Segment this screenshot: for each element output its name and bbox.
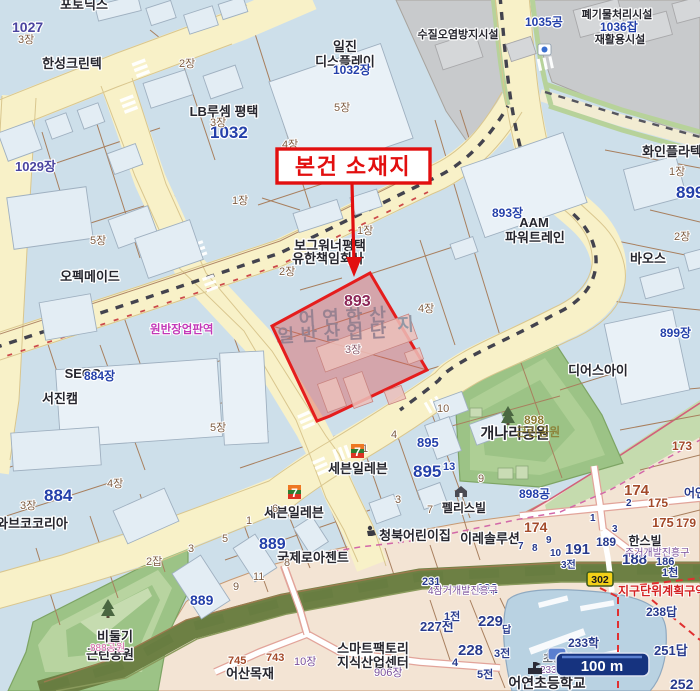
- svg-text:재활용시설: 재활용시설: [595, 32, 646, 46]
- svg-text:한스빌: 한스빌: [628, 533, 661, 548]
- svg-text:서진캠: 서진캠: [42, 391, 78, 406]
- svg-text:1: 1: [590, 513, 596, 524]
- svg-text:906장: 906장: [374, 666, 402, 679]
- svg-text:174: 174: [624, 482, 650, 499]
- svg-text:한성크린텍: 한성크린텍: [42, 56, 102, 71]
- svg-text:어언: 어언: [684, 485, 700, 500]
- svg-text:889: 889: [259, 536, 286, 553]
- svg-text:7: 7: [427, 504, 433, 516]
- svg-text:3장: 3장: [210, 116, 226, 129]
- svg-text:청북어린이집: 청북어린이집: [379, 528, 451, 543]
- svg-text:893: 893: [344, 293, 371, 310]
- svg-text:2: 2: [626, 498, 632, 509]
- svg-text:252: 252: [670, 676, 694, 691]
- svg-text:4잠거개발진흥구: 4잠거개발진흥구: [428, 584, 498, 597]
- svg-text:4: 4: [391, 429, 397, 441]
- svg-text:파워트레인: 파워트레인: [505, 230, 565, 245]
- svg-text:2장: 2장: [179, 57, 195, 70]
- svg-text:10: 10: [550, 548, 562, 559]
- svg-text:디어스아이: 디어스아이: [568, 363, 628, 378]
- svg-text:5전: 5전: [477, 667, 493, 681]
- svg-text:7: 7: [518, 541, 524, 552]
- svg-text:1천: 1천: [662, 565, 678, 579]
- svg-text:바오스: 바오스: [630, 251, 666, 266]
- svg-text:9: 9: [233, 581, 239, 593]
- svg-text:895: 895: [417, 435, 439, 450]
- svg-text:9: 9: [478, 473, 484, 485]
- svg-text:근린공원: 근린공원: [516, 424, 560, 439]
- svg-text:1029장: 1029장: [15, 159, 56, 174]
- svg-text:3장: 3장: [20, 499, 36, 512]
- svg-text:1전: 1전: [444, 609, 460, 623]
- svg-text:6: 6: [272, 503, 278, 515]
- svg-text:4장: 4장: [418, 302, 434, 315]
- svg-text:5: 5: [222, 533, 228, 545]
- svg-text:2잡: 2잡: [146, 555, 162, 568]
- svg-text:1035공: 1035공: [525, 15, 563, 29]
- svg-text:3: 3: [395, 494, 401, 506]
- svg-text:5장: 5장: [90, 234, 106, 247]
- svg-text:238답: 238답: [646, 604, 677, 619]
- svg-text:1032장: 1032장: [333, 63, 371, 77]
- svg-text:지구단위계획구역: 지구단위계획구역: [618, 583, 700, 598]
- svg-text:3: 3: [612, 524, 618, 535]
- svg-text:주거개발진흥구: 주거개발진흥구: [625, 546, 689, 559]
- svg-text:폐기물처리시설: 폐기물처리시설: [582, 7, 653, 21]
- svg-text:펠리스빌: 펠리스빌: [442, 500, 486, 515]
- svg-text:3장: 3장: [345, 343, 361, 356]
- svg-text:4: 4: [452, 657, 459, 669]
- svg-text:5장: 5장: [334, 101, 350, 114]
- svg-text:어연초등학교: 어연초등학교: [508, 675, 585, 691]
- svg-text:884: 884: [44, 486, 73, 505]
- svg-text:228: 228: [458, 642, 483, 659]
- svg-text:7: 7: [291, 486, 298, 500]
- svg-text:세븐일레븐: 세븐일레븐: [328, 461, 388, 476]
- svg-text:5장: 5장: [210, 421, 226, 434]
- svg-text:AAM: AAM: [519, 215, 549, 230]
- svg-text:175: 175: [652, 515, 674, 530]
- svg-text:13: 13: [443, 461, 455, 473]
- svg-text:179: 179: [676, 516, 696, 530]
- svg-text:10장: 10장: [294, 655, 316, 668]
- svg-text:884장: 884장: [84, 369, 115, 383]
- svg-text:893장: 893장: [492, 206, 523, 220]
- svg-text:745: 745: [228, 655, 246, 667]
- svg-text:화인플라텍: 화인플라텍: [642, 144, 700, 159]
- svg-text:888공원: 888공원: [90, 642, 125, 654]
- svg-text:173: 173: [672, 439, 692, 453]
- svg-text:11: 11: [253, 571, 264, 583]
- svg-text:1장: 1장: [357, 224, 373, 237]
- svg-text:답: 답: [502, 624, 512, 636]
- svg-text:229: 229: [478, 613, 503, 630]
- svg-text:포토닉스: 포토닉스: [60, 0, 108, 12]
- svg-text:3전: 3전: [494, 646, 510, 660]
- svg-text:이레솔루션: 이레솔루션: [460, 531, 520, 546]
- svg-text:10: 10: [437, 403, 449, 415]
- svg-text:233학: 233학: [568, 635, 599, 650]
- svg-text:원반장업판역: 원반장업판역: [150, 322, 213, 336]
- svg-text:2장: 2장: [279, 265, 295, 278]
- svg-text:수질오염방지시설: 수질오염방지시설: [418, 27, 499, 41]
- svg-text:8: 8: [284, 557, 290, 569]
- svg-text:174: 174: [524, 519, 548, 535]
- svg-text:3: 3: [188, 543, 194, 555]
- svg-text:3장: 3장: [18, 33, 34, 46]
- svg-text:175: 175: [648, 496, 668, 510]
- svg-text:본건 소재지: 본건 소재지: [295, 154, 411, 179]
- svg-text:1: 1: [246, 515, 252, 527]
- svg-text:오펙메이드: 오펙메이드: [60, 269, 120, 284]
- svg-text:743: 743: [266, 652, 284, 664]
- svg-text:251답: 251답: [654, 643, 688, 658]
- svg-text:1장: 1장: [669, 165, 685, 178]
- svg-text:2장: 2장: [674, 230, 690, 243]
- svg-text:189: 189: [596, 535, 616, 549]
- svg-text:895: 895: [413, 462, 441, 481]
- svg-text:899장: 899장: [660, 326, 691, 340]
- svg-text:8: 8: [532, 543, 538, 554]
- svg-text:4장: 4장: [107, 477, 123, 490]
- svg-text:100 m: 100 m: [581, 658, 624, 675]
- svg-text:889: 889: [190, 592, 214, 608]
- svg-text:898공: 898공: [519, 487, 550, 501]
- svg-text:7: 7: [354, 445, 361, 459]
- svg-text:일진: 일진: [333, 39, 357, 54]
- svg-text:지: 지: [397, 314, 415, 335]
- svg-text:와브코코리아: 와브코코리아: [0, 516, 68, 531]
- svg-text:3전: 3전: [561, 558, 576, 571]
- svg-text:어산목재: 어산목재: [226, 666, 274, 681]
- svg-text:191: 191: [565, 541, 590, 558]
- svg-text:9: 9: [546, 535, 552, 546]
- svg-text:899: 899: [676, 183, 700, 202]
- svg-text:1027: 1027: [12, 19, 43, 35]
- svg-text:스마트팩토리: 스마트팩토리: [337, 641, 409, 656]
- svg-text:302: 302: [591, 574, 609, 586]
- svg-text:233: 233: [540, 665, 557, 676]
- svg-text:1장: 1장: [232, 194, 248, 207]
- svg-text:1036잡: 1036잡: [600, 19, 638, 34]
- svg-text:비둘기: 비둘기: [97, 629, 133, 644]
